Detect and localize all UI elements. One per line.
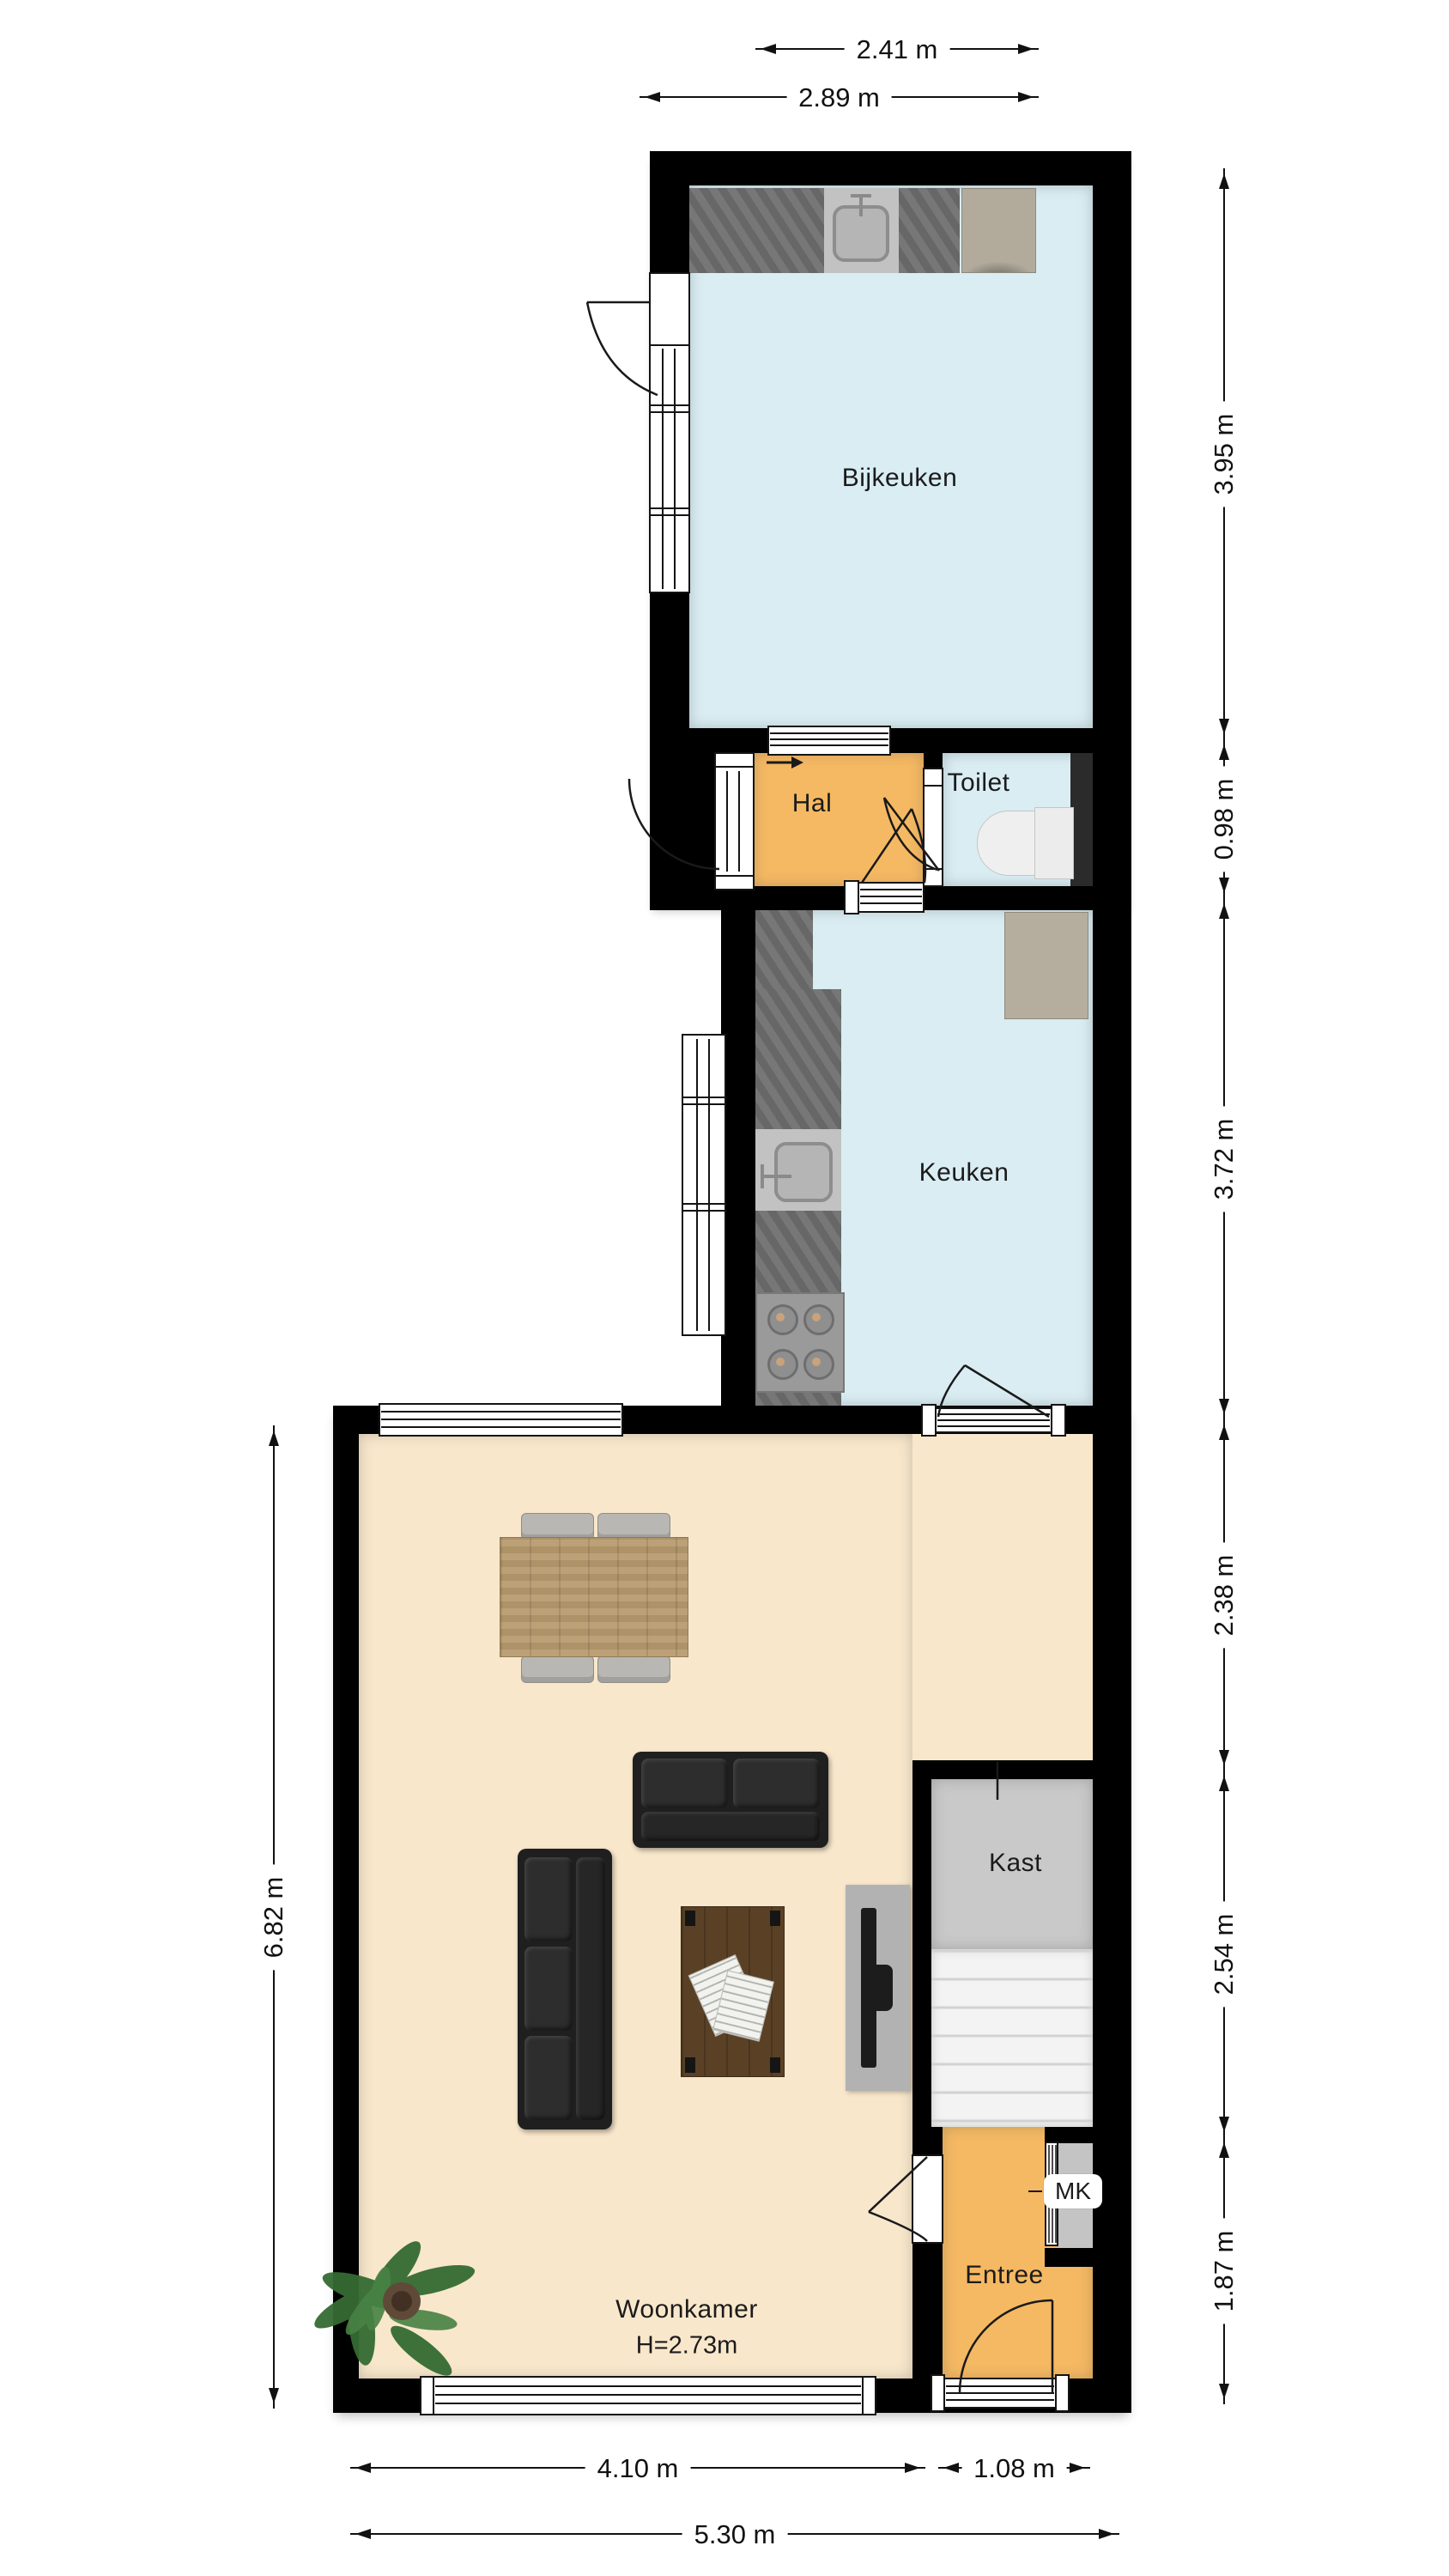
dim-bottom-1: 1.08 m — [938, 2467, 1090, 2469]
dim-right-2: 3.72 m — [1223, 898, 1225, 1419]
kitchen-sink-unit — [755, 1129, 841, 1211]
dim-right-0: 3.95 m — [1223, 168, 1225, 739]
label-kast: Kast — [989, 1849, 1042, 1878]
kitchen-counter-mid — [755, 989, 841, 1129]
kitchen-counter-low — [755, 1211, 841, 1292]
meterkast-wall-top — [1045, 2127, 1093, 2143]
dim-top-0: 2.41 m — [755, 48, 1039, 50]
floor-plan: Bijkeuken Hal Toilet Keuken Kast Woonkam… — [0, 0, 1449, 2576]
dim-right-3: 2.38 m — [1223, 1419, 1225, 1771]
kitchen-sink-basin — [774, 1142, 833, 1202]
label-entree: Entree — [965, 2261, 1043, 2290]
dim-right-1: 0.98 m — [1223, 739, 1225, 898]
sofa-three-seat — [518, 1849, 612, 2129]
tv — [861, 1908, 876, 2068]
dining-chair — [597, 1656, 670, 1683]
fridge — [1004, 912, 1088, 1019]
dining-chair — [521, 1656, 594, 1683]
dim-right-4: 2.54 m — [1223, 1771, 1225, 2137]
dim-bottom-0: 4.10 m — [350, 2467, 925, 2469]
toilet-fixture-bowl — [977, 811, 1040, 876]
stove — [755, 1292, 845, 1393]
toilet-fixture-tank — [1034, 807, 1074, 879]
bijkeuken-door-arc — [587, 302, 658, 395]
sofa-two-seat — [633, 1752, 828, 1848]
label-bijkeuken: Bijkeuken — [842, 464, 958, 493]
utility-counter-left — [689, 188, 824, 273]
utility-counter-right — [899, 188, 960, 273]
label-ceiling-height: H=2.73m — [636, 2332, 737, 2360]
dim-top-1: 2.89 m — [640, 96, 1039, 98]
label-keuken: Keuken — [919, 1158, 1009, 1188]
utility-sink-unit — [824, 188, 899, 273]
dim-bottom-2: 5.30 m — [350, 2533, 1119, 2535]
keuken-window-bay — [682, 1035, 725, 1335]
label-hal: Hal — [792, 789, 833, 818]
dim-right-5: 1.87 m — [1223, 2137, 1225, 2404]
dining-table — [500, 1537, 688, 1657]
staircase — [931, 1949, 1093, 2127]
kitchen-counter-top — [755, 910, 813, 989]
room-woonkamer-right — [912, 1434, 1093, 1760]
dim-left-0: 6.82 m — [273, 1425, 275, 2409]
meterkast-wall-bottom — [1045, 2248, 1093, 2267]
washer-boiler — [961, 188, 1036, 273]
room-hal — [754, 753, 924, 886]
label-woonkamer: Woonkamer — [615, 2295, 758, 2324]
utility-sink-basin — [833, 205, 889, 262]
label-meterkast: MK — [1044, 2174, 1102, 2208]
label-toilet: Toilet — [947, 769, 1009, 798]
tv-mount — [876, 1965, 893, 2011]
